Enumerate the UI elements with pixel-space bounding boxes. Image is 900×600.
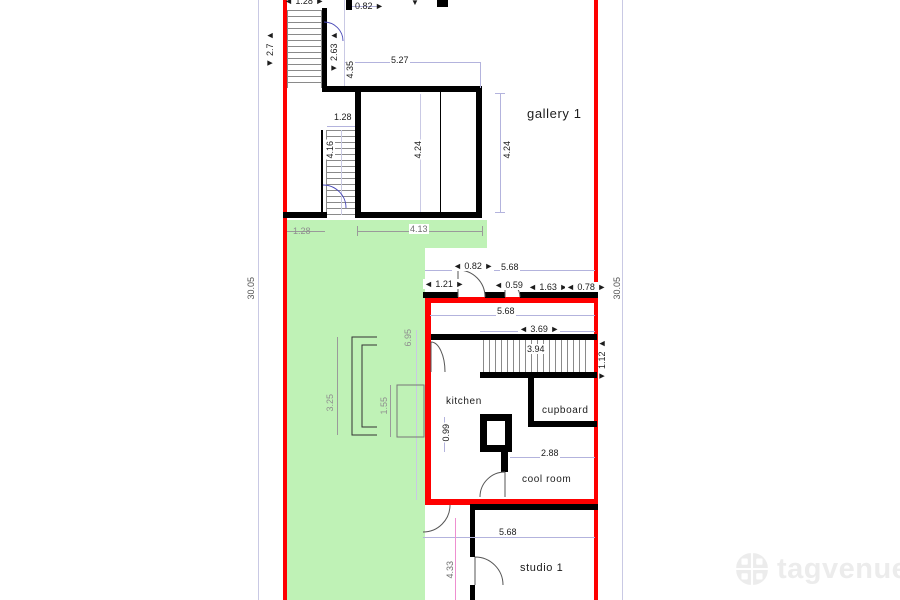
wall-shaft-tail — [501, 452, 508, 472]
dim-112: ◄ 1.12 ► — [598, 338, 607, 383]
wall-gallery-divider — [440, 92, 441, 212]
wall-entry-row-c — [520, 292, 598, 298]
dim-078: ◄ 0.78 ► — [565, 282, 607, 292]
dim-line-325 — [337, 337, 338, 435]
dim-568-b: 5.68 — [496, 306, 516, 316]
red-wall-left — [283, 0, 287, 600]
dim-416: 4.16 — [326, 140, 335, 160]
dim-435: 4.35 — [346, 60, 355, 80]
dim-082-mid: ◄ 0.82 ► — [452, 261, 494, 271]
wall-entry-row-a — [423, 292, 458, 298]
room-label-kitchen: kitchen — [446, 396, 482, 407]
dim-413: 4.13 — [409, 224, 429, 234]
green-area-extension — [425, 220, 487, 248]
dim-line-568-c — [423, 537, 595, 538]
dim-527: 5.27 — [390, 55, 410, 65]
room-label-cool-room: cool room — [522, 474, 571, 485]
dim-695: 6.95 — [404, 328, 413, 348]
dim-369: ◄ 3.69 ► — [518, 324, 560, 334]
dim-line-128-stair — [327, 126, 355, 127]
wall-studio-left-lower — [470, 585, 475, 600]
dim-263: ◄ 2.63 ► — [330, 30, 339, 75]
wall-kitchen-stair-top — [431, 334, 597, 340]
wall-gallery-bottom — [355, 212, 482, 218]
wall-stair1-right — [322, 8, 327, 88]
dim-line-527-h — [345, 62, 480, 63]
dim-082-top: 0.82 ► — [354, 1, 385, 11]
wall-studio-top — [470, 504, 598, 510]
wall-stub-top-b — [437, 0, 448, 7]
duct-shaft-inner — [487, 421, 505, 445]
door-arc-cool-room — [480, 472, 505, 497]
wall-stair2-left — [321, 130, 323, 216]
door-arc-kitchen — [431, 342, 445, 372]
dim-tick-424-a — [495, 93, 505, 94]
dim-tick-424-b — [495, 212, 505, 213]
room-label-studio: studio 1 — [520, 562, 563, 574]
wall-stub-top-a — [346, 0, 352, 10]
dim-433: 4.33 — [446, 560, 455, 580]
dim-128-stair: 1.28 — [333, 112, 353, 122]
stair-top-left — [287, 10, 322, 88]
door-arc-studio — [475, 557, 503, 585]
dim-tick-413-b — [482, 226, 483, 236]
dim-27: ◄ 2.7 ► — [266, 30, 275, 70]
wall-gallery-top — [322, 86, 482, 92]
room-label-cupboard: cupboard — [542, 405, 589, 416]
watermark: tagvenue — [733, 550, 900, 588]
dim-tick-413-a — [357, 226, 358, 236]
floor-plan: ◄ 1.28 ► 0.82 ► ▼ ◄ 2.7 ► ◄ 2.63 ► 4.35 … — [0, 0, 900, 600]
wall-entry-row-b — [485, 292, 505, 298]
wall-gallery-right — [476, 92, 482, 218]
dim-line-right-30 — [622, 0, 623, 600]
dim-288: 2.88 — [540, 448, 560, 458]
dim-325: 3.25 — [326, 393, 335, 413]
dim-099: 0.99 — [442, 423, 451, 443]
dim-128-top: ◄ 1.28 ► — [283, 0, 325, 6]
dim-3005-right: 30.05 — [613, 276, 622, 301]
dim-394: 3.94 — [526, 344, 546, 354]
wall-studio-left-upper — [470, 504, 475, 557]
dim-568-c: 5.68 — [498, 527, 518, 537]
dim-line-left-30 — [258, 0, 259, 600]
dim-line-424-right — [500, 93, 501, 213]
wall-cupboard-left — [528, 378, 534, 427]
door-arc-corridor — [423, 505, 450, 532]
wall-kitchen-stair-bottom — [480, 372, 597, 378]
room-label-gallery: gallery 1 — [527, 106, 582, 121]
dim-424-right: 4.24 — [503, 140, 512, 160]
red-wall-kitchen-left — [425, 297, 431, 505]
wall-cupboard-bottom — [534, 421, 597, 427]
dim-line-416-v — [341, 130, 342, 215]
dim-163: ◄ 1.63 ► — [527, 282, 569, 292]
dim-568-a: 5.68 — [500, 262, 520, 272]
dim-155: 1.55 — [380, 396, 389, 416]
dim-line-695 — [416, 330, 417, 500]
tagvenue-pinwheel-icon — [733, 550, 771, 588]
dim-3005-left: 30.05 — [247, 276, 256, 301]
dim-line-155 — [390, 385, 391, 437]
dim-128-green: 1.28 — [292, 226, 312, 236]
dim-424-inner: 4.24 — [414, 140, 423, 160]
watermark-brand: tagvenue — [777, 553, 900, 586]
dim-line-433-pink — [455, 518, 456, 600]
dim-arrow-top: ▼ — [410, 0, 420, 8]
wall-gallery-left — [355, 92, 361, 218]
dim-121: ◄ 1.21 ► — [423, 279, 465, 289]
dim-line-527-v — [480, 62, 481, 88]
green-area-main — [287, 220, 425, 600]
